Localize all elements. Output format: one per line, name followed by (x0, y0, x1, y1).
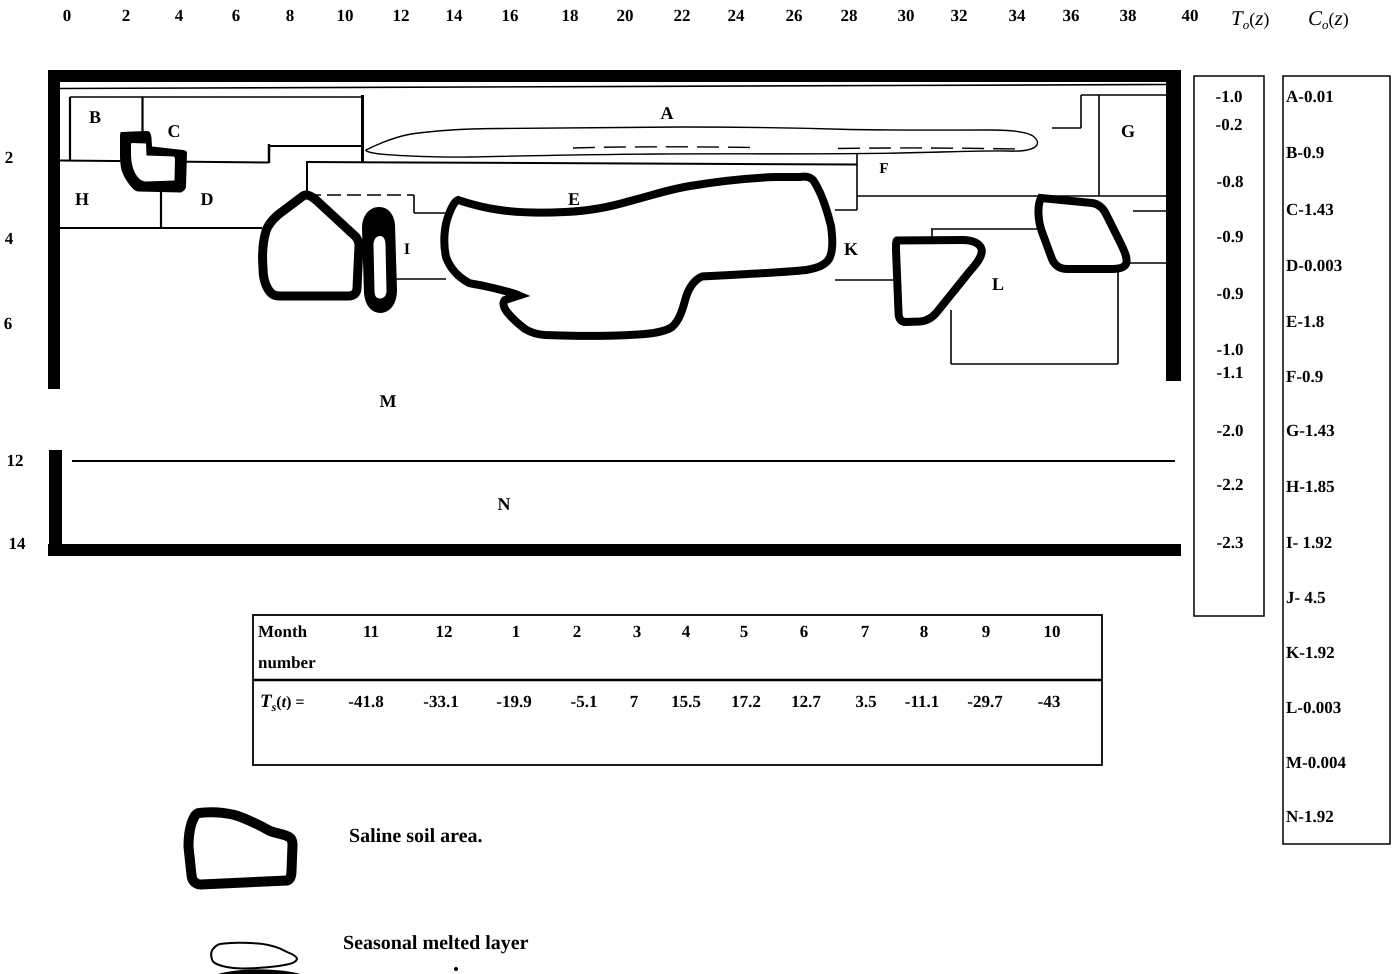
svg-text:Ts(t) =: Ts(t) = (260, 691, 305, 714)
svg-text:34: 34 (1009, 6, 1027, 25)
svg-text:36: 36 (1063, 6, 1080, 25)
svg-text:6: 6 (800, 622, 809, 641)
svg-text:7: 7 (630, 692, 639, 711)
svg-text:Co(z): Co(z) (1308, 6, 1349, 32)
svg-text:16: 16 (502, 6, 519, 25)
svg-text:To(z): To(z) (1231, 6, 1269, 32)
svg-text:A-0.01: A-0.01 (1286, 87, 1334, 106)
svg-text:12: 12 (393, 6, 410, 25)
svg-text:number: number (258, 653, 316, 672)
svg-text:-41.8: -41.8 (348, 692, 383, 711)
svg-text:10: 10 (337, 6, 354, 25)
svg-text:A: A (661, 103, 674, 123)
svg-text:30: 30 (898, 6, 915, 25)
svg-text:G-1.43: G-1.43 (1286, 421, 1335, 440)
svg-text:-19.9: -19.9 (496, 692, 531, 711)
svg-text:H: H (75, 189, 89, 209)
svg-text:-2.2: -2.2 (1217, 475, 1244, 494)
svg-text:-2.3: -2.3 (1217, 533, 1244, 552)
svg-text:8: 8 (286, 6, 295, 25)
svg-text:-0.9: -0.9 (1217, 284, 1244, 303)
svg-text:-0.8: -0.8 (1217, 172, 1244, 191)
svg-text:6: 6 (4, 314, 13, 333)
svg-text:M: M (380, 391, 397, 411)
svg-text:-1.0: -1.0 (1217, 340, 1244, 359)
svg-text:12.7: 12.7 (791, 692, 821, 711)
svg-text:32: 32 (951, 6, 968, 25)
svg-text:26: 26 (786, 6, 803, 25)
svg-text:11: 11 (363, 622, 379, 641)
svg-text:Month: Month (258, 622, 308, 641)
svg-text:4: 4 (5, 229, 14, 248)
svg-text:0: 0 (63, 6, 72, 25)
svg-text:-5.1: -5.1 (571, 692, 598, 711)
svg-text:I- 1.92: I- 1.92 (1286, 533, 1332, 552)
svg-text:8: 8 (920, 622, 929, 641)
svg-text:C-1.43: C-1.43 (1286, 200, 1334, 219)
svg-text:10: 10 (1044, 622, 1061, 641)
svg-text:N: N (498, 494, 511, 514)
svg-text:6: 6 (232, 6, 241, 25)
svg-text:17.2: 17.2 (731, 692, 761, 711)
svg-text:-11.1: -11.1 (905, 692, 939, 711)
svg-text:B-0.9: B-0.9 (1286, 143, 1324, 162)
svg-text:14: 14 (9, 534, 27, 553)
svg-text:24: 24 (728, 6, 746, 25)
svg-text:K: K (844, 239, 858, 259)
svg-text:4: 4 (175, 6, 184, 25)
svg-text:I: I (404, 241, 410, 258)
svg-text:F: F (879, 161, 888, 177)
svg-text:L-0.003: L-0.003 (1286, 698, 1341, 717)
svg-text:28: 28 (841, 6, 858, 25)
svg-text:-2.0: -2.0 (1217, 421, 1244, 440)
svg-text:D-0.003: D-0.003 (1286, 256, 1342, 275)
svg-text:N-1.92: N-1.92 (1286, 807, 1334, 826)
svg-text:-1.0: -1.0 (1216, 87, 1243, 106)
svg-text:E: E (568, 189, 580, 209)
svg-text:20: 20 (617, 6, 634, 25)
svg-text:2: 2 (5, 148, 14, 167)
svg-text:14: 14 (446, 6, 464, 25)
svg-text:J- 4.5: J- 4.5 (1286, 588, 1326, 607)
svg-text:22: 22 (674, 6, 691, 25)
svg-text:12: 12 (436, 622, 453, 641)
svg-text:2: 2 (573, 622, 582, 641)
svg-text:Saline soil area.: Saline soil area. (349, 825, 483, 847)
svg-text:C: C (168, 121, 181, 141)
svg-text:-0.2: -0.2 (1216, 115, 1243, 134)
svg-text:D: D (201, 189, 214, 209)
svg-text:40: 40 (1182, 6, 1199, 25)
svg-text:2: 2 (122, 6, 131, 25)
svg-text:7: 7 (861, 622, 870, 641)
svg-text:9: 9 (982, 622, 991, 641)
svg-text:-43: -43 (1038, 692, 1061, 711)
svg-text:H-1.85: H-1.85 (1286, 477, 1335, 496)
svg-text:F-0.9: F-0.9 (1286, 367, 1323, 386)
svg-text:K-1.92: K-1.92 (1286, 643, 1335, 662)
svg-text:5: 5 (740, 622, 749, 641)
svg-text:-29.7: -29.7 (967, 692, 1003, 711)
svg-text:12: 12 (7, 451, 24, 470)
svg-text:Seasonal melted layer: Seasonal melted layer (343, 932, 529, 954)
svg-text:-0.9: -0.9 (1217, 227, 1244, 246)
svg-text:B: B (89, 107, 101, 127)
svg-text:G: G (1121, 121, 1135, 141)
svg-text:15.5: 15.5 (671, 692, 701, 711)
svg-text:4: 4 (682, 622, 691, 641)
svg-text:M-0.004: M-0.004 (1286, 753, 1346, 772)
svg-text:3: 3 (633, 622, 642, 641)
svg-text:3.5: 3.5 (855, 692, 876, 711)
svg-text:E-1.8: E-1.8 (1286, 312, 1324, 331)
svg-text:1: 1 (512, 622, 521, 641)
svg-text:-1.1: -1.1 (1217, 363, 1244, 382)
svg-text:18: 18 (562, 6, 579, 25)
svg-text:-33.1: -33.1 (423, 692, 458, 711)
svg-text:38: 38 (1120, 6, 1137, 25)
svg-text:L: L (992, 274, 1004, 294)
